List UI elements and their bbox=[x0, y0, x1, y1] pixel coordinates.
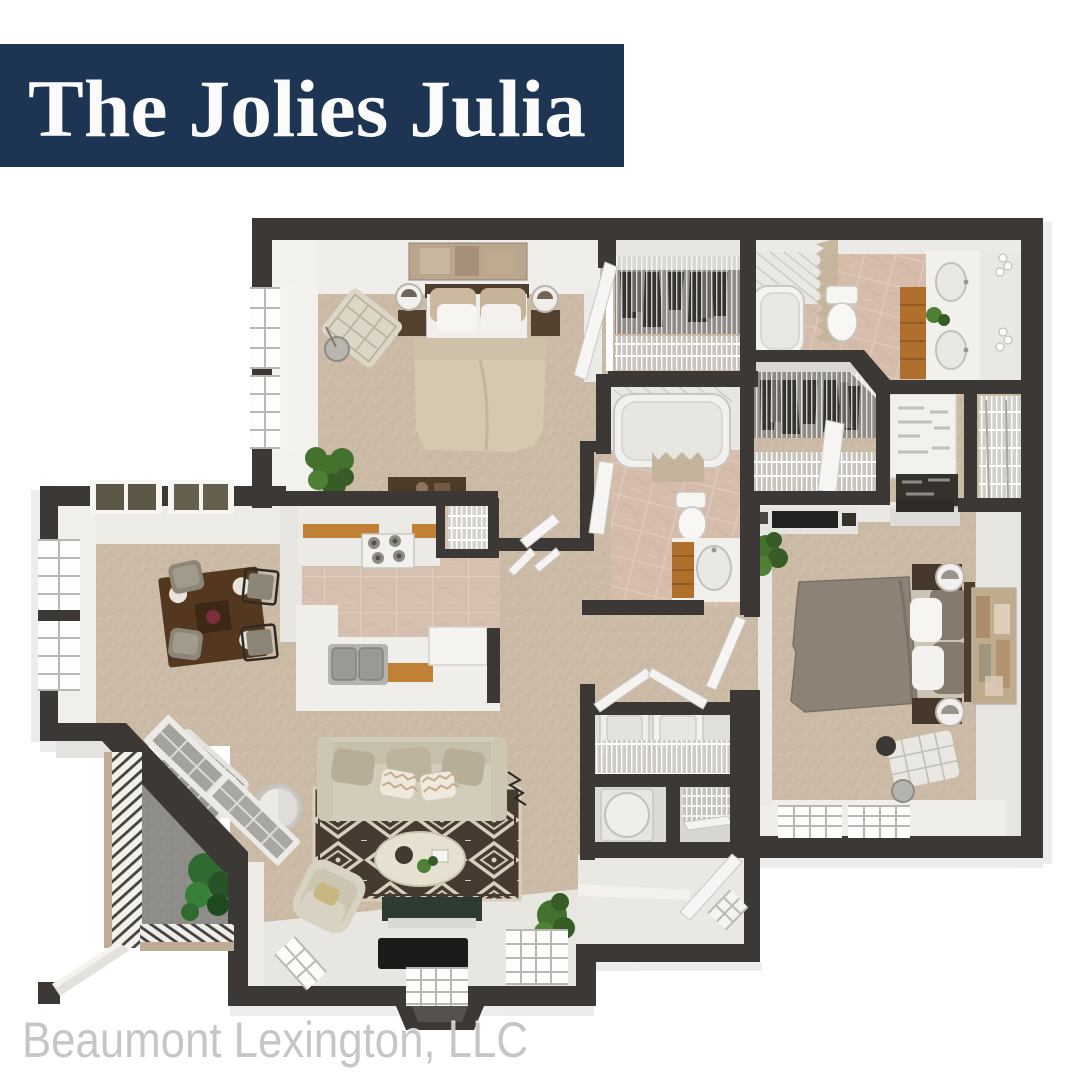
svg-text:The Jolies Julia: The Jolies Julia bbox=[28, 63, 586, 154]
svg-text:Beaumont Lexington, LLC: Beaumont Lexington, LLC bbox=[22, 1012, 528, 1068]
